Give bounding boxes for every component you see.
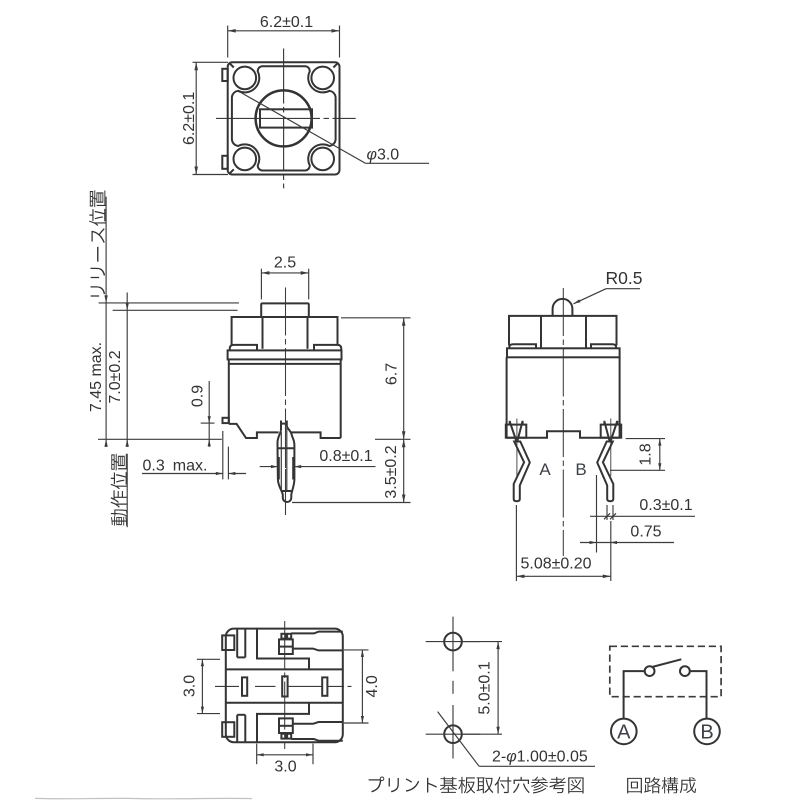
svg-text:6.2±0.1: 6.2±0.1 — [260, 14, 313, 31]
svg-text:1.8: 1.8 — [638, 443, 655, 465]
svg-text:6.2±0.1: 6.2±0.1 — [181, 92, 198, 145]
svg-text:7.0±0.2: 7.0±0.2 — [107, 350, 124, 403]
svg-text:3.5±0.2: 3.5±0.2 — [383, 445, 400, 498]
svg-text:φ3.0: φ3.0 — [367, 146, 400, 163]
svg-text:7.45 max.: 7.45 max. — [88, 342, 105, 412]
svg-text:0.75: 0.75 — [630, 524, 661, 541]
svg-text:3.0: 3.0 — [182, 675, 199, 697]
svg-text:0.9: 0.9 — [190, 385, 207, 407]
svg-text:5.08±0.20: 5.08±0.20 — [520, 556, 591, 573]
svg-text:0.3 max.: 0.3 max. — [143, 457, 208, 474]
svg-text:A: A — [539, 460, 551, 479]
svg-text:4.0: 4.0 — [364, 675, 381, 697]
svg-text:B: B — [700, 722, 713, 744]
svg-text:3.0: 3.0 — [274, 759, 296, 776]
svg-text:0.8±0.1: 0.8±0.1 — [319, 448, 372, 465]
svg-text:0.3±0.1: 0.3±0.1 — [639, 497, 692, 514]
svg-text:B: B — [575, 460, 586, 479]
svg-text:2-φ1.00±0.05: 2-φ1.00±0.05 — [492, 749, 588, 766]
svg-text:R0.5: R0.5 — [606, 268, 643, 288]
svg-text:2.5: 2.5 — [274, 255, 296, 272]
svg-text:5.0±0.1: 5.0±0.1 — [477, 661, 494, 714]
svg-text:A: A — [617, 722, 631, 744]
svg-text:6.7: 6.7 — [384, 363, 401, 385]
